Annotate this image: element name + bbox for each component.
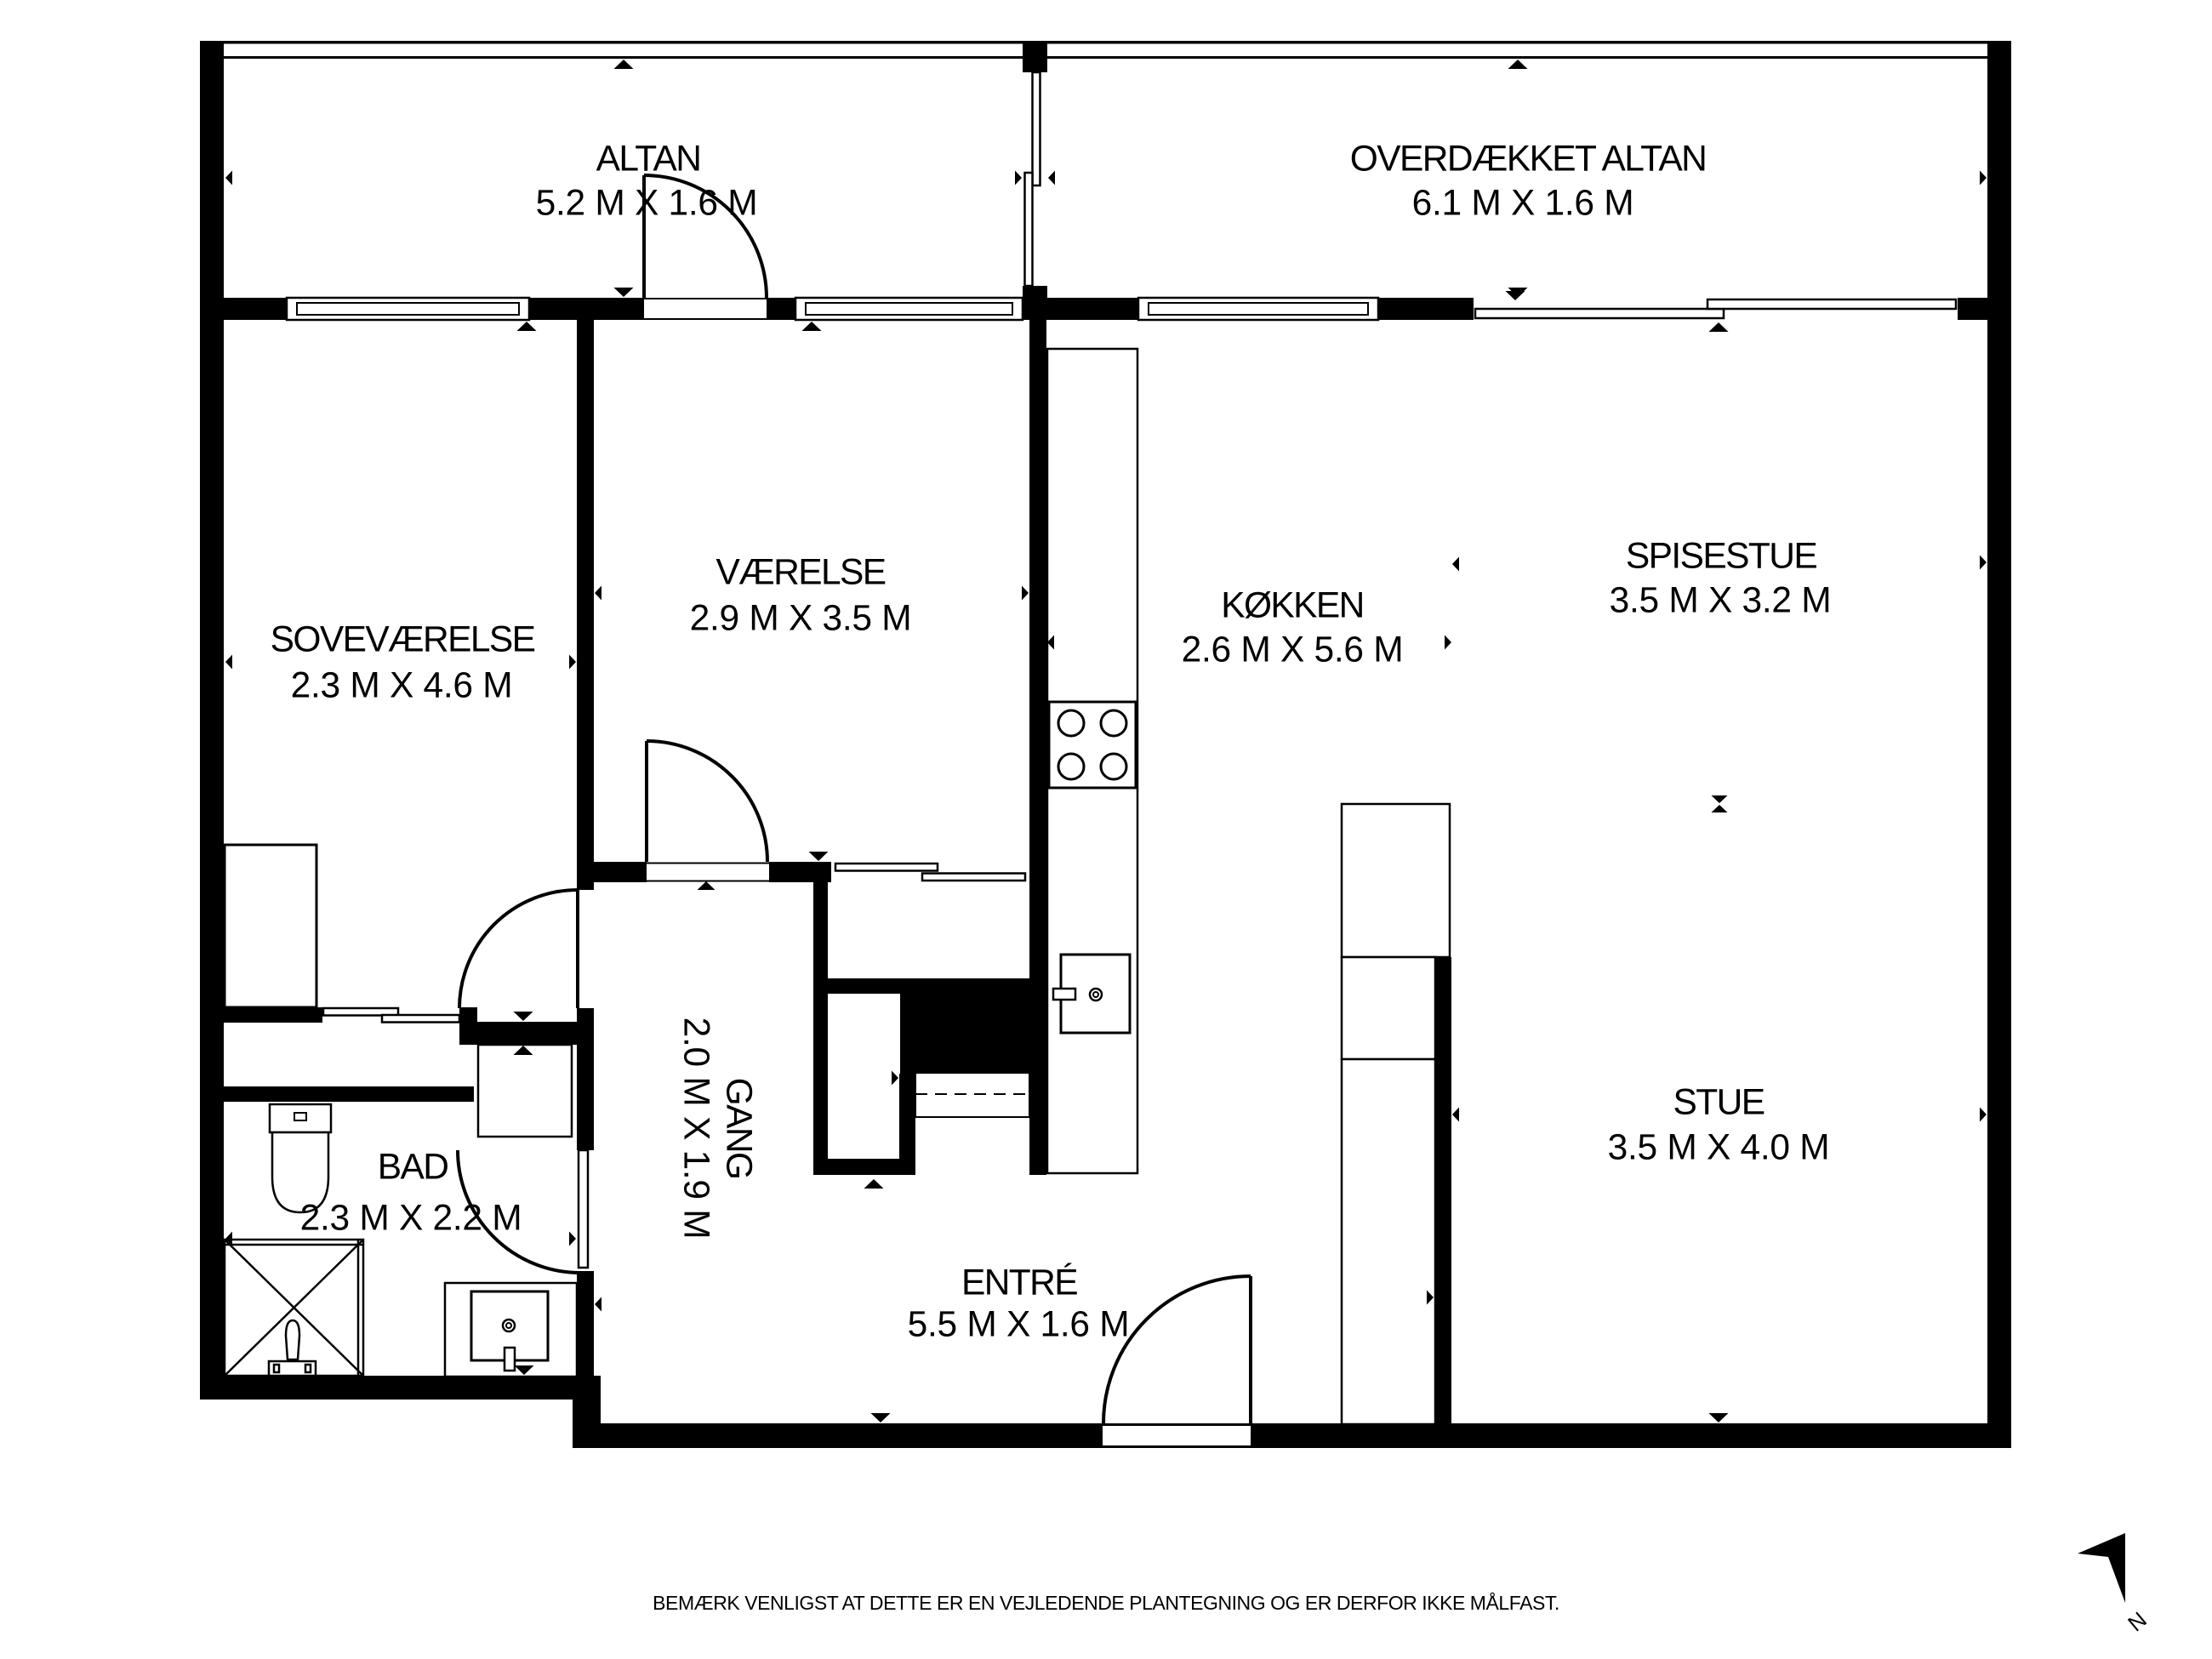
svg-text:2.3 M X 4.6 M: 2.3 M X 4.6 M: [291, 666, 513, 706]
svg-text:BAD: BAD: [378, 1148, 448, 1188]
svg-text:2.6 M X 5.6 M: 2.6 M X 5.6 M: [1182, 630, 1404, 670]
svg-text:ALTAN: ALTAN: [596, 140, 701, 180]
svg-text:KØKKEN: KØKKEN: [1221, 586, 1364, 626]
svg-text:BEMÆRK VENLIGST AT DETTE ER EN: BEMÆRK VENLIGST AT DETTE ER EN VEJLEDEND…: [653, 1591, 1559, 1614]
svg-text:5.2 M X 1.6 M: 5.2 M X 1.6 M: [536, 184, 758, 224]
svg-text:2.3 M X 2.2 M: 2.3 M X 2.2 M: [300, 1199, 522, 1239]
svg-text:SOVEVÆRELSE: SOVEVÆRELSE: [271, 620, 535, 660]
svg-text:GANG: GANG: [719, 1078, 759, 1179]
svg-text:ENTRÉ: ENTRÉ: [961, 1263, 1077, 1303]
svg-text:SPISESTUE: SPISESTUE: [1626, 537, 1816, 577]
svg-text:3.5 M X 3.2 M: 3.5 M X 3.2 M: [1610, 581, 1832, 621]
svg-text:STUE: STUE: [1673, 1083, 1764, 1123]
svg-text:6.1 M X 1.6 M: 6.1 M X 1.6 M: [1412, 184, 1634, 224]
svg-text:3.5 M X 4.0 M: 3.5 M X 4.0 M: [1608, 1128, 1830, 1168]
svg-text:OVERDÆKKET ALTAN: OVERDÆKKET ALTAN: [1350, 140, 1706, 180]
svg-text:5.5 M X 1.6 M: 5.5 M X 1.6 M: [908, 1305, 1130, 1345]
svg-text:2.9 M X 3.5 M: 2.9 M X 3.5 M: [690, 599, 912, 639]
svg-text:VÆRELSE: VÆRELSE: [715, 553, 885, 593]
svg-text:2.0 M X 1.9 M: 2.0 M X 1.9 M: [676, 1018, 716, 1240]
